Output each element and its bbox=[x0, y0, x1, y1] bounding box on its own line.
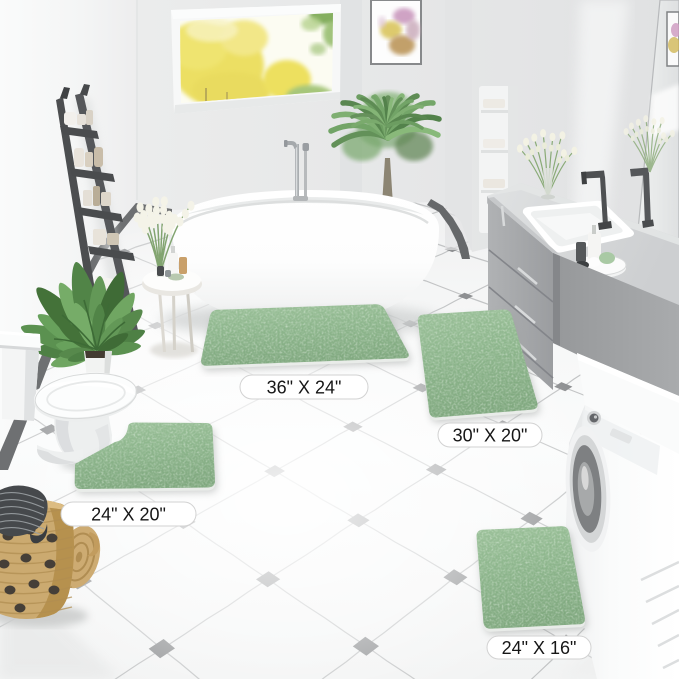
svg-text:36" X 24": 36" X 24" bbox=[267, 378, 342, 398]
svg-text:30" X 20": 30" X 20" bbox=[453, 426, 528, 446]
svg-text:24" X 16": 24" X 16" bbox=[502, 638, 577, 658]
svg-text:24" X 20": 24" X 20" bbox=[91, 505, 166, 525]
